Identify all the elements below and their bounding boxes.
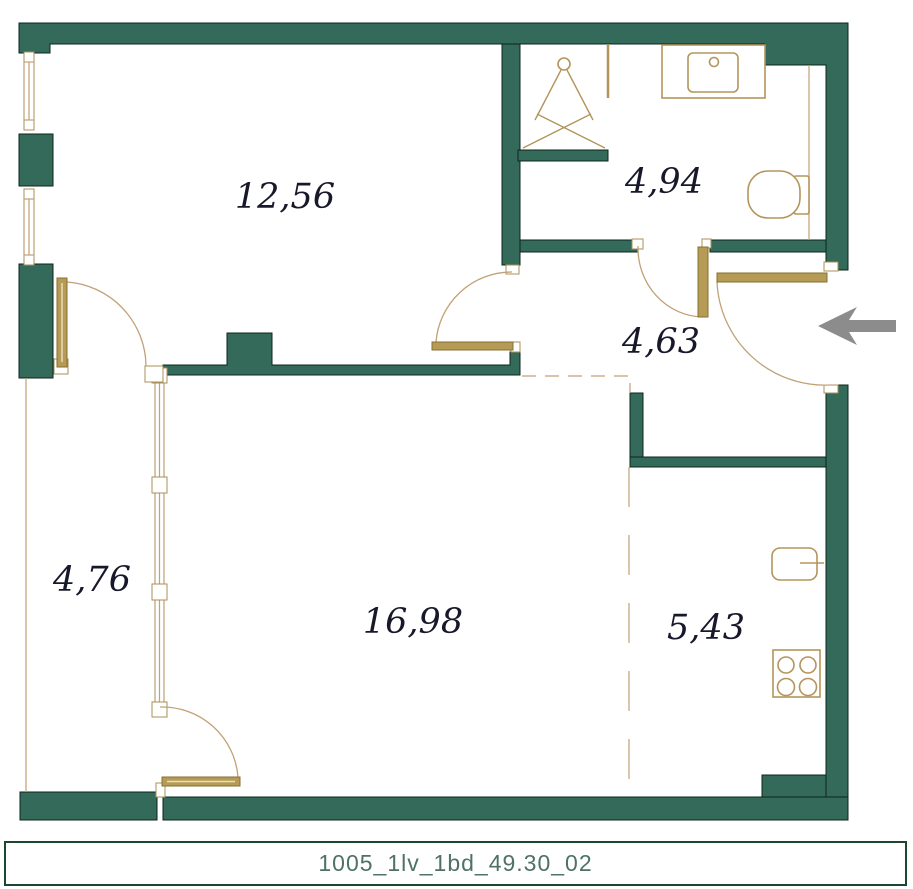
door-bathroom <box>638 246 708 317</box>
room-label-kitchen: 5,43 <box>667 608 745 648</box>
left-wall-pier-lower <box>19 264 53 378</box>
room-label-hallway: 4,63 <box>621 322 700 362</box>
fridge-fixture <box>772 548 824 580</box>
bedroom-wall-jamb <box>145 366 163 382</box>
entry-jamb-top <box>824 262 838 271</box>
door-living-to-balcony <box>160 707 240 786</box>
shower-wall <box>518 150 608 161</box>
room-label-bedroom: 12,56 <box>235 177 335 217</box>
exterior-wall-bottom-step <box>762 775 826 797</box>
bathroom-wall-bottom-right <box>710 240 826 252</box>
room-label-living: 16,98 <box>363 602 463 642</box>
balcony-glazing <box>152 368 167 717</box>
door-bedroom-to-hallway <box>432 272 513 350</box>
room-label-balcony: 4,76 <box>52 560 131 600</box>
left-wall-window-lower <box>24 189 34 265</box>
niche-wall-left <box>630 393 643 467</box>
bathroom-wall-bottom-left <box>520 240 638 252</box>
floor-plan: 12,56 4,94 4,63 4,76 16,98 5,43 1005_1lv… <box>0 0 913 889</box>
niche-wall-bottom <box>630 457 826 467</box>
sink-fixture <box>662 45 765 98</box>
bedroom-bathroom-wall <box>502 44 520 265</box>
exterior-wall-right-lower <box>826 385 848 820</box>
floor-plan-drawing: 12,56 4,94 4,63 4,76 16,98 5,43 <box>0 0 913 841</box>
left-wall-pier-upper <box>19 134 53 186</box>
plan-title: 1005_1lv_1bd_49.30_02 <box>318 850 592 877</box>
bedroom-bottom-wall <box>163 333 520 375</box>
door-entry <box>717 273 830 385</box>
exterior-wall-bottom-left <box>20 792 157 820</box>
left-wall-window-upper <box>24 52 34 130</box>
plan-title-bar: 1005_1lv_1bd_49.30_02 <box>4 841 907 886</box>
entrance-arrow-icon <box>818 307 896 345</box>
toilet-fixture <box>748 171 809 218</box>
stove-fixture <box>773 650 820 697</box>
exterior-wall-bottom <box>163 797 848 820</box>
entry-jamb-bottom <box>824 385 838 393</box>
shower-fixture <box>523 44 608 148</box>
door-bedroom-to-balcony <box>57 278 146 367</box>
room-label-bathroom: 4,94 <box>624 162 703 202</box>
hallway-living-boundary <box>522 376 630 392</box>
